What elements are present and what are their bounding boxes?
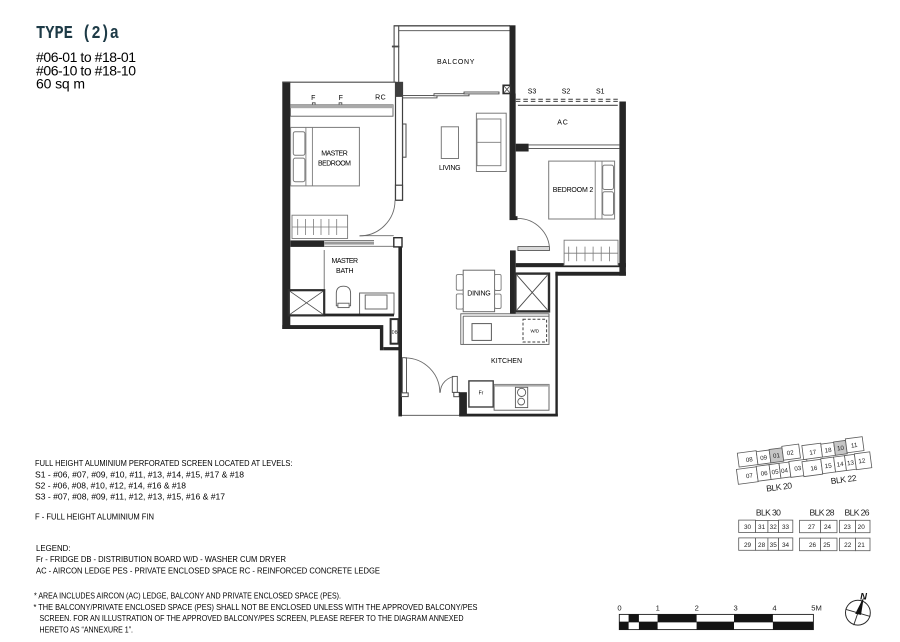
svg-text:23: 23 — [844, 524, 852, 531]
svg-text:BEDROOM 2: BEDROOM 2 — [553, 187, 594, 194]
svg-text:32: 32 — [770, 524, 778, 531]
svg-text:W/D: W/D — [531, 329, 540, 334]
svg-text:* THE BALCONY/PRIVATE ENCLOSED: * THE BALCONY/PRIVATE ENCLOSED SPACE (PE… — [34, 602, 478, 612]
svg-text:F: F — [311, 95, 315, 102]
svg-text:F: F — [339, 95, 343, 102]
svg-text:HERETO AS “ANNEXURE 1”.: HERETO AS “ANNEXURE 1”. — [40, 624, 134, 634]
svg-text:BEDROOM: BEDROOM — [318, 160, 351, 167]
svg-text:LEGEND:: LEGEND: — [36, 543, 71, 553]
svg-text:Fr: Fr — [479, 391, 484, 397]
svg-text:RC: RC — [375, 95, 386, 102]
svg-text:BLK 22: BLK 22 — [830, 473, 857, 486]
svg-text:25: 25 — [823, 542, 831, 549]
svg-text:AC - AIRCON LEDGE PES - PRIV: AC - AIRCON LEDGE PES - PRIVATE ENCLOSED… — [36, 565, 380, 575]
svg-text:SCREEN. FOR AN ILLUSTRATION OF: SCREEN. FOR AN ILLUSTRATION OF THE APPRO… — [40, 613, 464, 623]
svg-text:4: 4 — [772, 604, 776, 613]
svg-text:21: 21 — [858, 542, 866, 549]
svg-text:MASTER: MASTER — [321, 150, 348, 157]
svg-text:FULL HEIGHT ALUMINIUM PERFORAT: FULL HEIGHT ALUMINIUM PERFORATED SCREEN … — [35, 458, 293, 468]
svg-text:LIVING: LIVING — [439, 165, 461, 172]
svg-text:34: 34 — [782, 542, 790, 549]
svg-text:S2 - #06, #08, #10, #12, #14,: S2 - #06, #08, #10, #12, #14, #16 & #18 — [35, 481, 186, 491]
svg-text:S1 - #06, #07, #09, #10, #11,: S1 - #06, #07, #09, #10, #11, #13, #14, … — [35, 469, 244, 479]
svg-text:31: 31 — [758, 524, 766, 531]
svg-text:TYPE (2)a: TYPE (2)a — [36, 24, 119, 44]
svg-text:27: 27 — [808, 524, 816, 531]
svg-text:S3 - #07, #08, #09, #11, #12,: S3 - #07, #08, #09, #11, #12, #13, #15, … — [35, 492, 225, 502]
svg-text:DINING: DINING — [467, 290, 491, 297]
svg-text:BATH: BATH — [336, 268, 354, 275]
svg-text:BLK 26: BLK 26 — [845, 508, 870, 518]
svg-text:MASTER: MASTER — [332, 258, 359, 265]
svg-text:BLK 30: BLK 30 — [756, 508, 781, 518]
svg-text:2: 2 — [695, 604, 699, 613]
svg-text:30: 30 — [744, 524, 752, 531]
svg-text:20: 20 — [858, 524, 866, 531]
svg-text:5M: 5M — [811, 604, 822, 613]
svg-text:DB: DB — [392, 329, 398, 334]
svg-text:24: 24 — [824, 524, 832, 531]
svg-text:1: 1 — [656, 604, 660, 613]
svg-text:35: 35 — [770, 542, 778, 549]
svg-text:KITCHEN: KITCHEN — [491, 358, 522, 365]
svg-text:Fr - FRIDGE DB - DISTRIBUTIO: Fr - FRIDGE DB - DISTRIBUTION BOARD W/D … — [36, 554, 286, 564]
svg-text:29: 29 — [744, 542, 752, 549]
svg-text:26: 26 — [809, 542, 817, 549]
svg-text:33: 33 — [782, 524, 790, 531]
svg-text:S3: S3 — [528, 89, 537, 96]
svg-text:N: N — [860, 592, 868, 603]
svg-text:AC: AC — [557, 119, 568, 126]
svg-text:BLK 28: BLK 28 — [810, 508, 835, 518]
svg-text:22: 22 — [844, 542, 852, 549]
svg-text:S2: S2 — [562, 89, 571, 96]
svg-text:BALCONY: BALCONY — [437, 59, 475, 66]
svg-text:* AREA INCLUDES AIRCON (AC) LE: * AREA INCLUDES AIRCON (AC) LEDGE, BALCO… — [34, 591, 341, 601]
svg-text:3: 3 — [733, 604, 737, 613]
svg-text:BLK 20: BLK 20 — [766, 480, 793, 493]
svg-text:0: 0 — [617, 604, 621, 613]
svg-text:28: 28 — [758, 542, 766, 549]
svg-text:60 sq m: 60 sq m — [36, 76, 85, 92]
svg-text:F - FULL HEIGHT ALUMINIUM FIN: F - FULL HEIGHT ALUMINIUM FIN — [35, 512, 154, 522]
svg-text:S1: S1 — [596, 89, 605, 96]
